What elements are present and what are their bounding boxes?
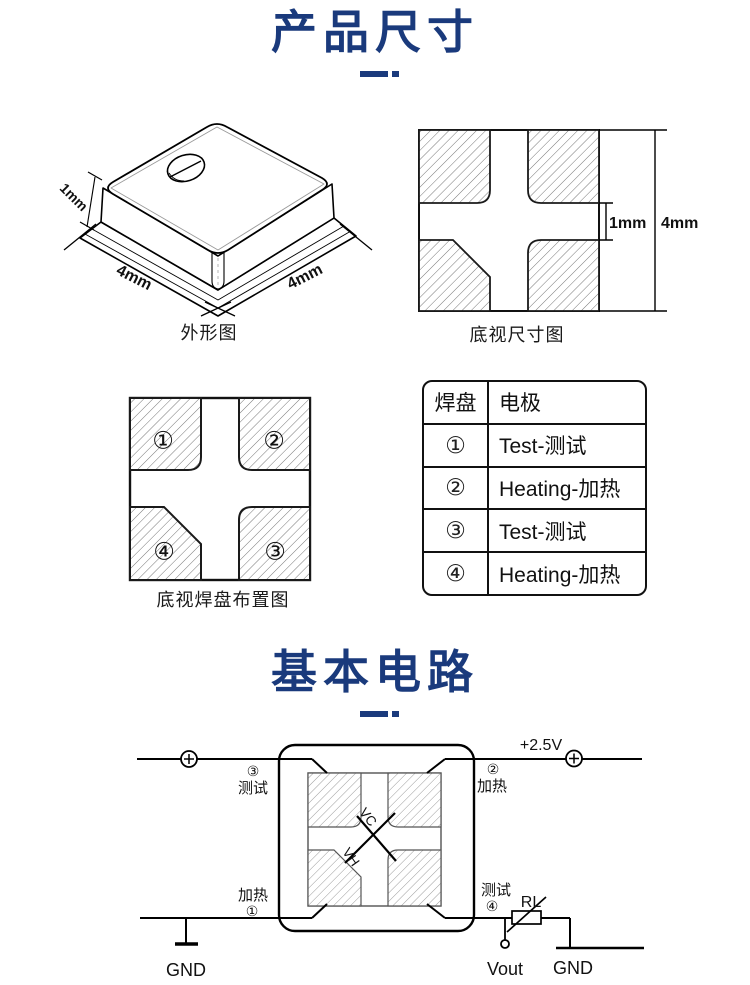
pin2-label: 加热 [477,778,507,795]
cell-electrode: Heating-加热 [487,553,645,594]
cell-electrode: Heating-加热 [487,468,645,509]
pad-layout-figure: ① ② ③ ④ [118,392,328,587]
plus-terminal-icon [181,751,197,767]
pin4-label: 测试 [481,882,511,899]
cell-pad-number: ① [424,425,487,466]
pad-number-1: ① [152,428,174,455]
page-title-dimensions: 产品尺寸 [0,6,750,58]
gnd-symbol-left [175,918,198,944]
gnd-symbol-right [556,918,644,948]
electrode-table: 焊盘 电极 ① Test-测试 ② Heating-加热 ③ Test-测试 ④… [422,380,647,596]
title-underline-decoration [360,711,399,717]
underline-dot [392,71,399,77]
dim-label-total: 4mm [661,215,698,232]
supply-voltage-label: +2.5V [520,737,563,754]
die-pad-top-left [308,773,361,827]
rl-label: RL [521,894,542,911]
vout-terminal-icon [501,940,509,948]
cell-pad-number: ② [424,468,487,509]
underline-dash [360,71,388,77]
dim-label-height: 1mm [57,180,91,214]
pad-bottom-right [528,240,599,311]
pin2-number: ② [487,761,500,777]
pin3-number: ③ [247,763,260,779]
page-title-circuit: 基本电路 [0,646,750,698]
pin1-number: ① [246,903,259,919]
table-header-row: 焊盘 电极 [424,382,645,423]
header-electrode: 电极 [487,382,645,423]
plus-terminal-icon [566,751,582,767]
table-row: ② Heating-加热 [424,466,645,509]
cell-electrode: Test-测试 [487,425,645,466]
header-pad: 焊盘 [424,382,487,423]
pad-layout-caption: 底视焊盘布置图 [123,586,323,612]
outline-figure-caption: 外形图 [149,319,269,345]
table-row: ① Test-测试 [424,423,645,466]
basic-circuit-diagram: VC VH [125,732,665,984]
bottom-view-caption: 底视尺寸图 [437,321,597,347]
pin1-label: 加热 [238,887,268,904]
page: 产品尺寸 1mm 4mm 4mm 外形图 [0,0,750,985]
die-pad-top-right [388,773,441,827]
pad-number-4: ④ [153,539,175,566]
gnd-right-label: GND [553,958,593,978]
bottom-view-dimension-figure: 1mm 4mm [405,118,705,318]
pad-number-3: ③ [264,539,286,566]
die-pad-bottom-right [388,850,441,906]
cell-electrode: Test-测试 [487,510,645,551]
dim-label-gap: 1mm [609,215,646,232]
underline-dash [360,711,388,717]
pad-number-2: ② [263,428,285,455]
underline-dot [392,711,399,717]
gnd-left-label: GND [166,960,206,980]
cell-pad-number: ④ [424,553,487,594]
pin3-label: 测试 [238,780,268,797]
pad-top-right [528,130,599,203]
table-row: ④ Heating-加热 [424,551,645,594]
title-underline-decoration [360,71,399,77]
outline-figure: 1mm 4mm 4mm [50,110,380,325]
pin4-number: ④ [486,898,499,914]
cell-pad-number: ③ [424,510,487,551]
pad-top-left [419,130,490,203]
vout-label: Vout [487,959,523,979]
table-row: ③ Test-测试 [424,508,645,551]
